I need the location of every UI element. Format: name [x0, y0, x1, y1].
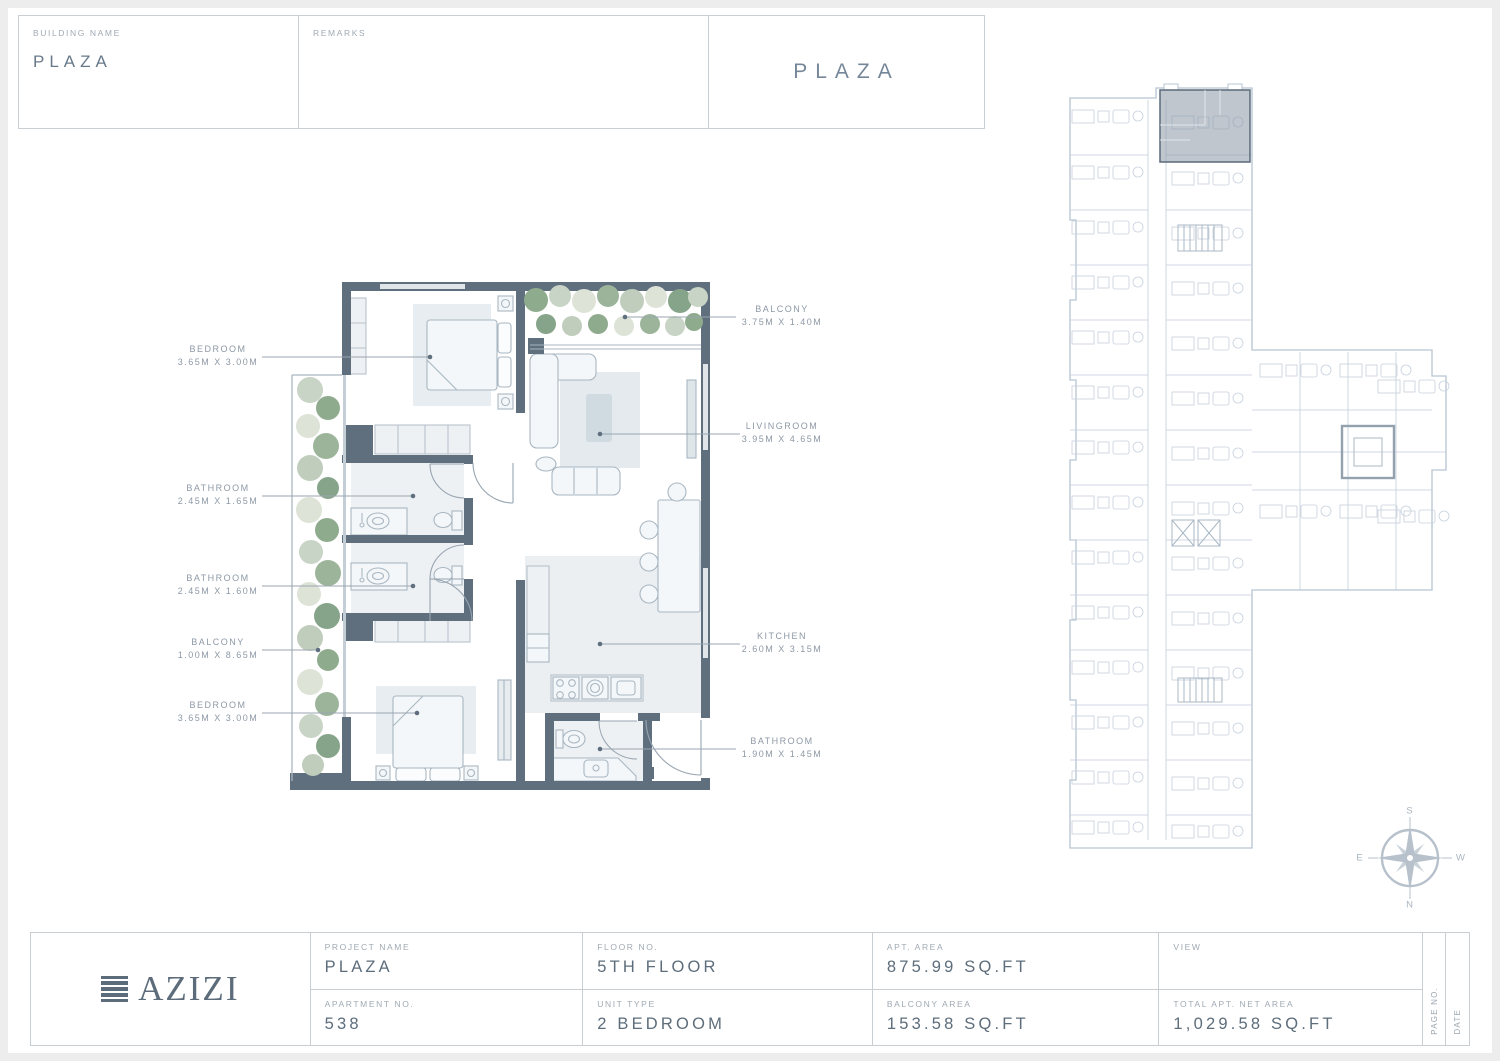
compass-rose-icon — [1350, 803, 1470, 913]
remarks-cell: REMARKS — [299, 16, 709, 128]
floor-no-cell: FLOOR NO. 5TH FLOOR — [583, 933, 872, 990]
view-cell: VIEW — [1159, 933, 1422, 990]
room-dims: 2.45M X 1.60M — [178, 585, 259, 598]
view-total-column: VIEW TOTAL APT. NET AREA 1,029.58 SQ.FT — [1159, 933, 1423, 1045]
date-cell: DATE — [1446, 933, 1469, 1045]
drawing-sheet: BUILDING NAME PLAZA REMARKS PLAZA — [0, 0, 1500, 1061]
total-area-label: TOTAL APT. NET AREA — [1173, 999, 1408, 1009]
compass-north: N — [1406, 900, 1414, 911]
floor-no-value: 5TH FLOOR — [597, 958, 858, 977]
balcony-trees-left — [296, 377, 341, 776]
compass-south: S — [1406, 806, 1413, 817]
room-dims: 1.90M X 1.45M — [742, 748, 823, 761]
room-dims: 3.65M X 3.00M — [178, 356, 259, 369]
header-table: BUILDING NAME PLAZA REMARKS PLAZA — [18, 15, 985, 129]
date-label: DATE — [1453, 1009, 1462, 1035]
room-label-bathroom-1: BATHROOM 2.45M X 1.65M — [178, 482, 259, 508]
apt-area-label: APT. AREA — [887, 942, 1145, 952]
room-name: BALCONY — [742, 303, 823, 316]
compass-west: W — [1456, 853, 1466, 864]
room-name: KITCHEN — [742, 630, 823, 643]
apt-area-value: 875.99 SQ.FT — [887, 958, 1145, 977]
room-dims: 2.60M X 3.15M — [742, 643, 823, 656]
room-label-balcony-left: BALCONY 1.00M X 8.65M — [178, 636, 259, 662]
room-dims: 1.00M X 8.65M — [178, 649, 259, 662]
balcony-area-label: BALCONY AREA — [887, 999, 1145, 1009]
page-no-cell: PAGE NO. — [1423, 933, 1446, 1045]
total-area-cell: TOTAL APT. NET AREA 1,029.58 SQ.FT — [1159, 990, 1422, 1046]
apartment-no-cell: APARTMENT NO. 538 — [311, 990, 583, 1046]
azizi-logo-icon — [101, 976, 128, 1003]
sheet-title-cell: PLAZA — [709, 16, 984, 128]
unit-type-cell: UNIT TYPE 2 BEDROOM — [583, 990, 872, 1046]
remarks-label: REMARKS — [313, 28, 694, 38]
room-label-bedroom-2: BEDROOM 3.65M X 3.00M — [178, 699, 259, 725]
total-area-value: 1,029.58 SQ.FT — [1173, 1015, 1408, 1034]
room-label-bedroom-1: BEDROOM 3.65M X 3.00M — [178, 343, 259, 369]
apartment-no-label: APARTMENT NO. — [325, 999, 569, 1009]
azizi-logo-text: AZIZI — [138, 969, 239, 1009]
compass-east: E — [1356, 853, 1363, 864]
view-label: VIEW — [1173, 942, 1408, 952]
room-name: BALCONY — [178, 636, 259, 649]
building-overview-plan — [1060, 80, 1455, 855]
apt-area-cell: APT. AREA 875.99 SQ.FT — [873, 933, 1159, 990]
room-dims: 2.45M X 1.65M — [178, 495, 259, 508]
building-name-cell: BUILDING NAME PLAZA — [19, 16, 299, 128]
project-name-label: PROJECT NAME — [325, 942, 569, 952]
building-name-value: PLAZA — [33, 52, 284, 72]
project-name-value: PLAZA — [325, 958, 569, 977]
floor-no-label: FLOOR NO. — [597, 942, 858, 952]
page-no-label: PAGE NO. — [1430, 987, 1439, 1035]
room-name: BATHROOM — [178, 572, 259, 585]
room-label-kitchen: KITCHEN 2.60M X 3.15M — [742, 630, 823, 656]
apartment-no-value: 538 — [325, 1015, 569, 1034]
room-label-bathroom-2: BATHROOM 2.45M X 1.60M — [178, 572, 259, 598]
room-name: BATHROOM — [178, 482, 259, 495]
project-name-cell: PROJECT NAME PLAZA — [311, 933, 583, 990]
unit-type-label: UNIT TYPE — [597, 999, 858, 1009]
unit-floor-plan — [180, 268, 880, 813]
room-label-livingroom: LIVINGROOM 3.95M X 4.65M — [742, 420, 823, 446]
room-label-balcony-top: BALCONY 3.75M X 1.40M — [742, 303, 823, 329]
room-dims: 3.65M X 3.00M — [178, 712, 259, 725]
room-name: BATHROOM — [742, 735, 823, 748]
azizi-logo: AZIZI — [31, 933, 311, 1045]
balcony-area-cell: BALCONY AREA 153.58 SQ.FT — [873, 990, 1159, 1046]
title-block: AZIZI PROJECT NAME PLAZA APARTMENT NO. 5… — [30, 932, 1470, 1046]
building-outline — [1070, 88, 1446, 848]
room-dims: 3.75M X 1.40M — [742, 316, 823, 329]
room-label-bathroom-3: BATHROOM 1.90M X 1.45M — [742, 735, 823, 761]
balcony-area-value: 153.58 SQ.FT — [887, 1015, 1145, 1034]
floor-unit-column: FLOOR NO. 5TH FLOOR UNIT TYPE 2 BEDROOM — [583, 933, 873, 1045]
room-name: LIVINGROOM — [742, 420, 823, 433]
compass-rose: S E W N — [1350, 803, 1470, 913]
balcony-trees-top — [524, 285, 708, 336]
unit-type-value: 2 BEDROOM — [597, 1015, 858, 1034]
highlighted-unit — [1160, 84, 1250, 162]
sheet-title: PLAZA — [793, 60, 900, 84]
room-dims: 3.95M X 4.65M — [742, 433, 823, 446]
building-name-label: BUILDING NAME — [33, 28, 284, 38]
room-name: BEDROOM — [178, 343, 259, 356]
room-name: BEDROOM — [178, 699, 259, 712]
area-column: APT. AREA 875.99 SQ.FT BALCONY AREA 153.… — [873, 933, 1160, 1045]
project-apartment-column: PROJECT NAME PLAZA APARTMENT NO. 538 — [311, 933, 584, 1045]
